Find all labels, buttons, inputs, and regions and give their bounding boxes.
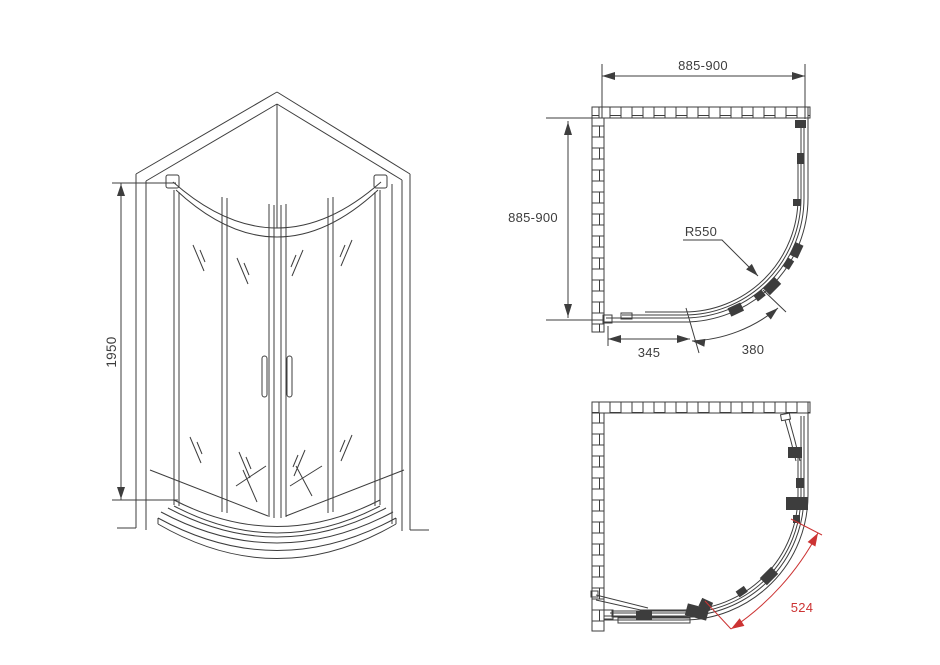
bottom-rail-and-tray [150, 470, 404, 559]
frame-posts [174, 190, 380, 518]
roller-hardware [636, 447, 808, 621]
arrow-down-icon [117, 487, 125, 499]
red-leader-upper [791, 519, 822, 535]
plan-view-open [591, 402, 810, 631]
arc-dimension-label: 380 [742, 342, 765, 357]
door-handle-left [262, 356, 267, 397]
width-dimension-label: 885-900 [678, 58, 728, 73]
front-isometric-view [112, 92, 429, 559]
wall-left-hatch [592, 413, 604, 631]
arrow-icon [808, 531, 822, 547]
shower-enclosure-drawing: 1950 885-900 885-900 R550 345 380 524 [0, 0, 940, 665]
dimension-labels: 1950 885-900 885-900 R550 345 380 524 [104, 58, 813, 615]
roller-hardware [728, 120, 806, 317]
wall-top-hatch [592, 107, 810, 118]
plan-view-closed [546, 64, 810, 353]
red-leader-lower [705, 601, 731, 629]
technical-drawing-canvas: 1950 885-900 885-900 R550 345 380 524 [0, 0, 940, 665]
height-dimension-label: 1950 [104, 336, 119, 367]
opening-dimension-label: 524 [791, 600, 814, 615]
radius-dimension-label: R550 [685, 224, 717, 239]
arrow-up-icon [117, 184, 125, 196]
radius-leader [683, 240, 758, 276]
wall-top-hatch [592, 402, 810, 413]
drawing-ink [112, 64, 810, 631]
red-arrows [729, 531, 822, 633]
wall-left-hatch [592, 118, 604, 332]
wall-outline [117, 92, 429, 531]
dimension-height-1950 [112, 183, 178, 500]
wall-outlines [592, 107, 810, 332]
door-cap [781, 413, 791, 420]
side-dimension-label: 345 [638, 345, 661, 360]
door-handle-right [287, 356, 292, 397]
depth-dimension-label: 885-900 [508, 210, 558, 225]
track-lines [604, 413, 808, 620]
arrow-icon [729, 618, 745, 633]
wall-outlines [592, 402, 810, 631]
